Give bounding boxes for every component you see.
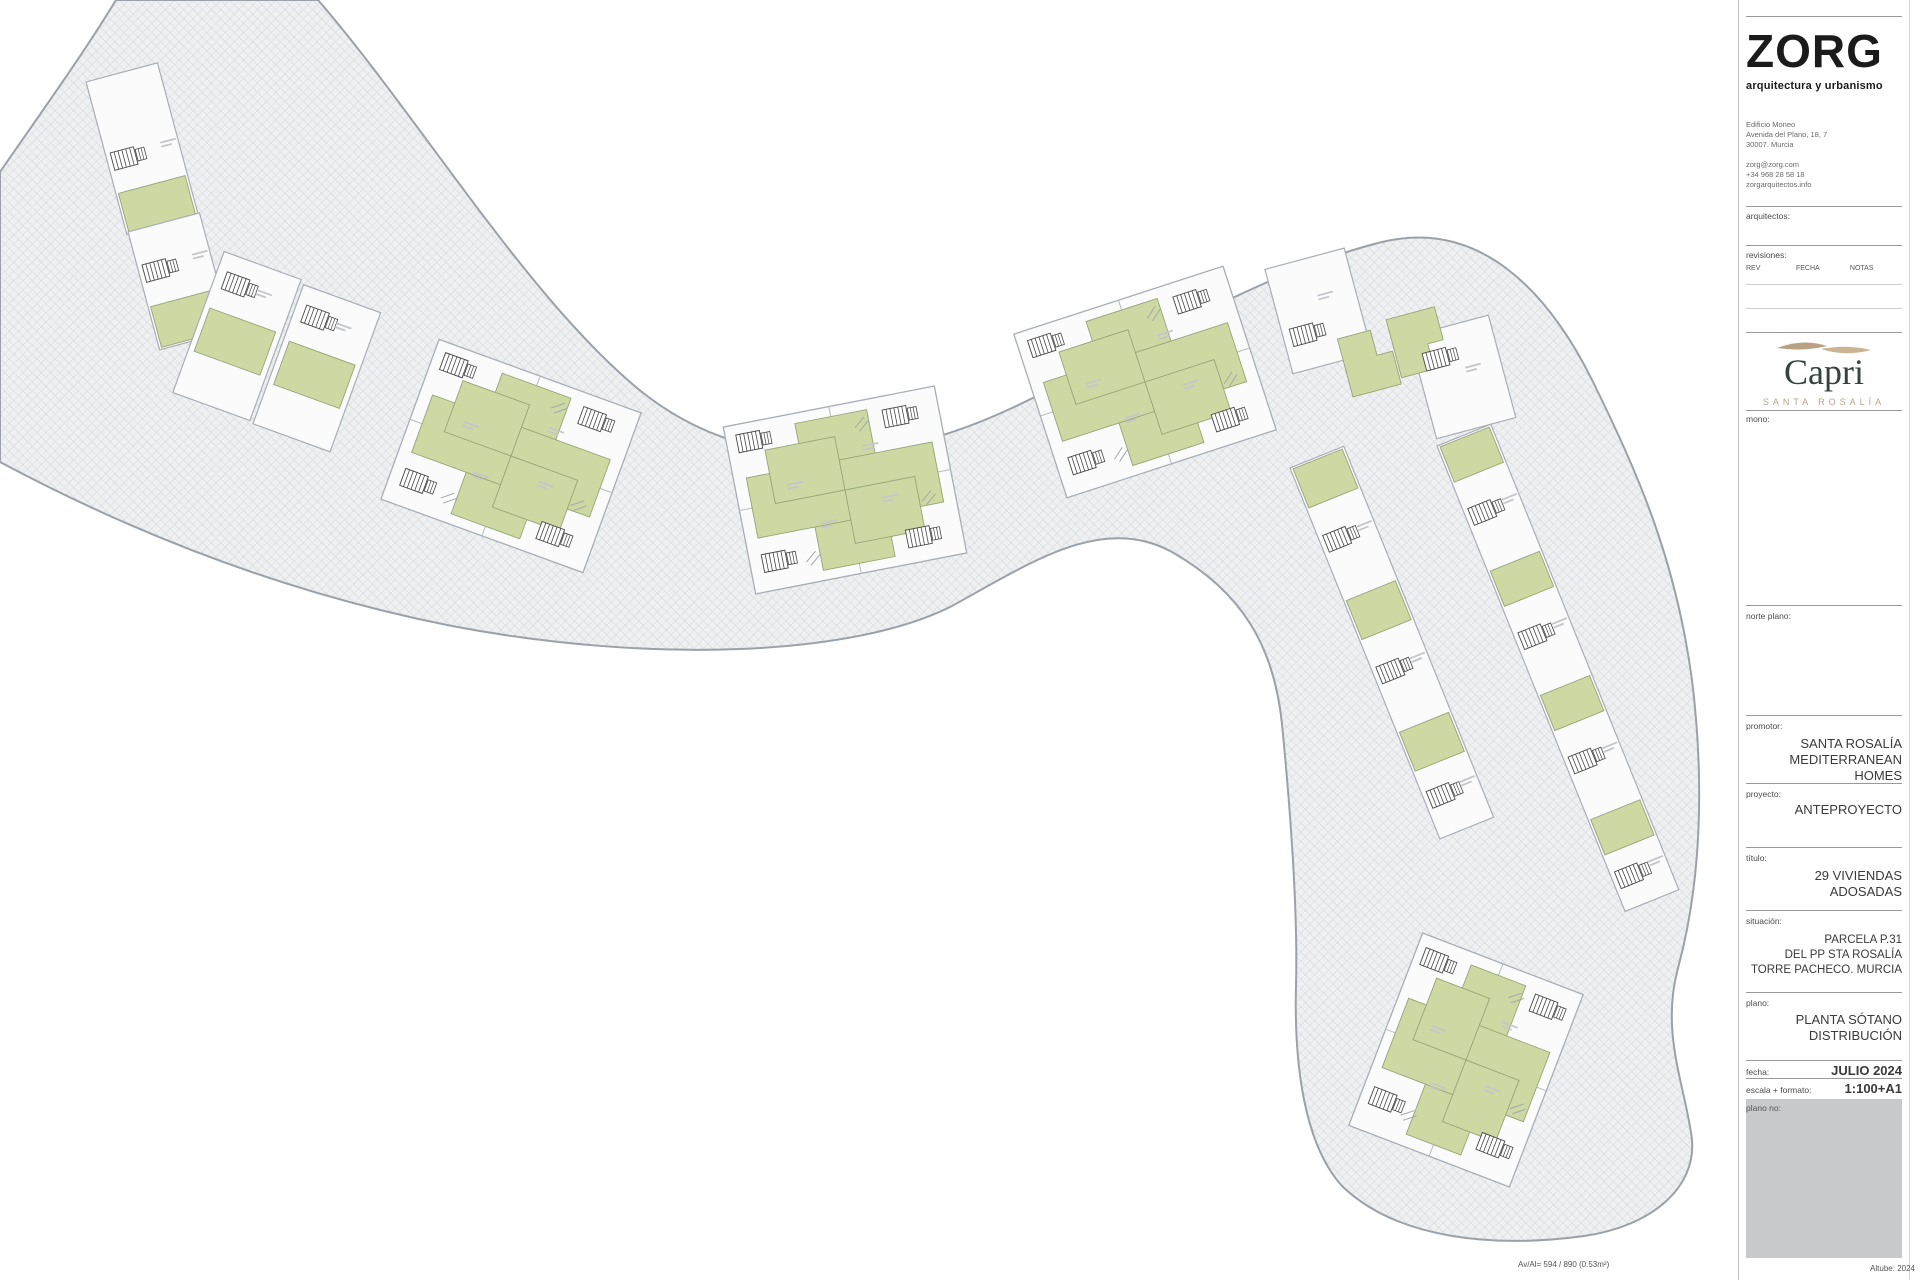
fecha-value: JULIO 2024 (1831, 1063, 1902, 1078)
fecha-col: FECHA (1796, 265, 1848, 272)
mono-label: mono: (1746, 414, 1902, 424)
promotor-value: SANTA ROSALÍA MEDITERRANEAN HOMES (1746, 736, 1902, 784)
studio-address: Edificio Moneo Avenida del Plano, 18, 7 … (1746, 120, 1902, 150)
divider (1746, 910, 1902, 911)
divider (1746, 1078, 1902, 1079)
promotor-line: SANTA ROSALÍA (1746, 736, 1902, 752)
plano-line: DISTRIBUCIÓN (1746, 1028, 1902, 1044)
zorg-logo: ZORG (1746, 28, 1902, 74)
revision-row (1746, 308, 1902, 309)
fecha-label: fecha: (1746, 1067, 1769, 1077)
titulo-label: título: (1746, 853, 1902, 863)
norte-label: norte plano: (1746, 611, 1902, 621)
divider (1746, 992, 1902, 993)
divider (1746, 1060, 1902, 1061)
drawing-sheet: ZORG arquitectura y urbanismo Edificio M… (0, 0, 1920, 1280)
divider (1746, 16, 1902, 17)
escala-label: escala + formato: (1746, 1085, 1811, 1095)
situacion-label: situación: (1746, 916, 1902, 926)
situacion-line: TORRE PACHECO. MURCIA (1746, 963, 1902, 978)
contact-line: zorgarquitectos.info (1746, 180, 1902, 190)
titulo-value: 29 VIVIENDAS ADOSADAS (1746, 868, 1902, 900)
rev-col: REV (1746, 265, 1794, 272)
divider (1746, 715, 1902, 716)
fecha-row: fecha: JULIO 2024 (1746, 1063, 1902, 1078)
plano-label: plano: (1746, 998, 1902, 1008)
address-line: Avenida del Plano, 18, 7 (1746, 130, 1902, 140)
studio-contact: zorg@zorg.com +34 968 28 58 18 zorgarqui… (1746, 160, 1902, 190)
title-block: ZORG arquitectura y urbanismo Edificio M… (1738, 0, 1910, 1280)
divider (1746, 410, 1902, 411)
address-line: 30007. Murcia (1746, 140, 1902, 150)
zorg-tagline: arquitectura y urbanismo (1746, 80, 1902, 92)
escala-row: escala + formato: 1:100+A1 (1746, 1081, 1902, 1096)
divider (1746, 847, 1902, 848)
promotor-label: promotor: (1746, 721, 1902, 731)
proyecto-label: proyecto: (1746, 789, 1902, 799)
capri-sub: SANTA ROSALÍA (1746, 397, 1902, 407)
divider (1746, 783, 1902, 784)
plano-no-label: plano no: (1746, 1103, 1902, 1113)
proyecto-value: ANTEPROYECTO (1746, 802, 1902, 818)
promotor-line: MEDITERRANEAN HOMES (1746, 752, 1902, 784)
divider (1746, 245, 1902, 246)
address-line: Edificio Moneo (1746, 120, 1902, 130)
divider (1746, 206, 1902, 207)
plano-number-box (1746, 1099, 1902, 1258)
situacion-line: PARCELA P.31 (1746, 933, 1902, 948)
titulo-line: 29 VIVIENDAS (1746, 868, 1902, 884)
divider (1746, 332, 1902, 333)
capri-logo: Capri (1746, 354, 1902, 390)
revisiones-label: revisiones: (1746, 250, 1902, 260)
contact-line: zorg@zorg.com (1746, 160, 1902, 170)
credit-note: Altube: 2024 (1845, 1264, 1915, 1273)
contact-line: +34 968 28 58 18 (1746, 170, 1902, 180)
escala-value: 1:100+A1 (1845, 1081, 1902, 1096)
revision-table-header: REV FECHA NOTAS (1746, 265, 1902, 272)
titulo-line: ADOSADAS (1746, 884, 1902, 900)
notas-col: NOTAS (1850, 265, 1874, 272)
site-plan (0, 0, 1920, 1280)
arquitectos-label: arquitectos: (1746, 211, 1902, 221)
area-note: Av/Al= 594 / 890 (0.53m²) (1518, 1260, 1609, 1269)
situacion-value: PARCELA P.31 DEL PP STA ROSALÍA TORRE PA… (1746, 933, 1902, 978)
plano-value: PLANTA SÓTANO DISTRIBUCIÓN (1746, 1012, 1902, 1044)
situacion-line: DEL PP STA ROSALÍA (1746, 948, 1902, 963)
plano-line: PLANTA SÓTANO (1746, 1012, 1902, 1028)
revision-row (1746, 284, 1902, 285)
divider (1746, 605, 1902, 606)
